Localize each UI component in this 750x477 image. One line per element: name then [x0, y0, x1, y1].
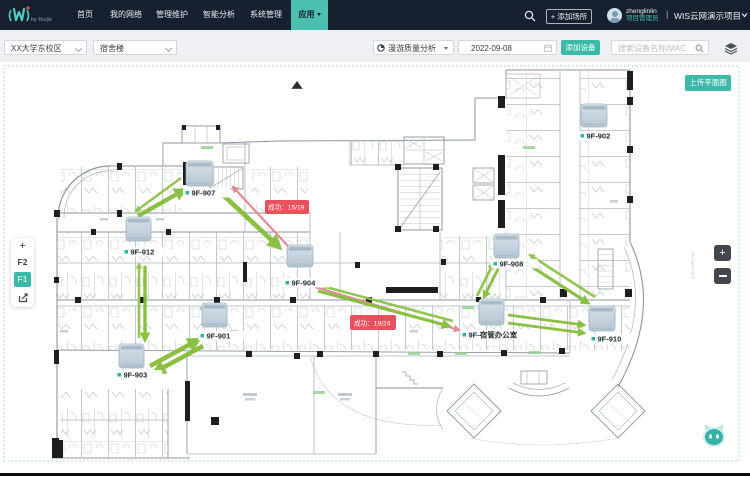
svg-text:9F-912: 9F-912	[131, 248, 155, 257]
svg-text:9F-903: 9F-903	[124, 371, 148, 380]
svg-text:LAN WIFI6 AP: LAN WIFI6 AP	[690, 252, 695, 278]
svg-text:9F-宿管办公室: 9F-宿管办公室	[469, 330, 518, 340]
svg-text:9F-907: 9F-907	[192, 189, 216, 198]
svg-text:9F-910: 9F-910	[598, 335, 622, 344]
svg-text:9F-902: 9F-902	[587, 132, 611, 141]
svg-text:成功：15/19: 成功：15/19	[268, 203, 305, 212]
svg-text:9F-904: 9F-904	[292, 279, 317, 288]
svg-text:9F-908: 9F-908	[500, 260, 524, 269]
svg-text:成功：19/24: 成功：19/24	[354, 319, 391, 328]
svg-text:9F-901: 9F-901	[207, 332, 231, 341]
